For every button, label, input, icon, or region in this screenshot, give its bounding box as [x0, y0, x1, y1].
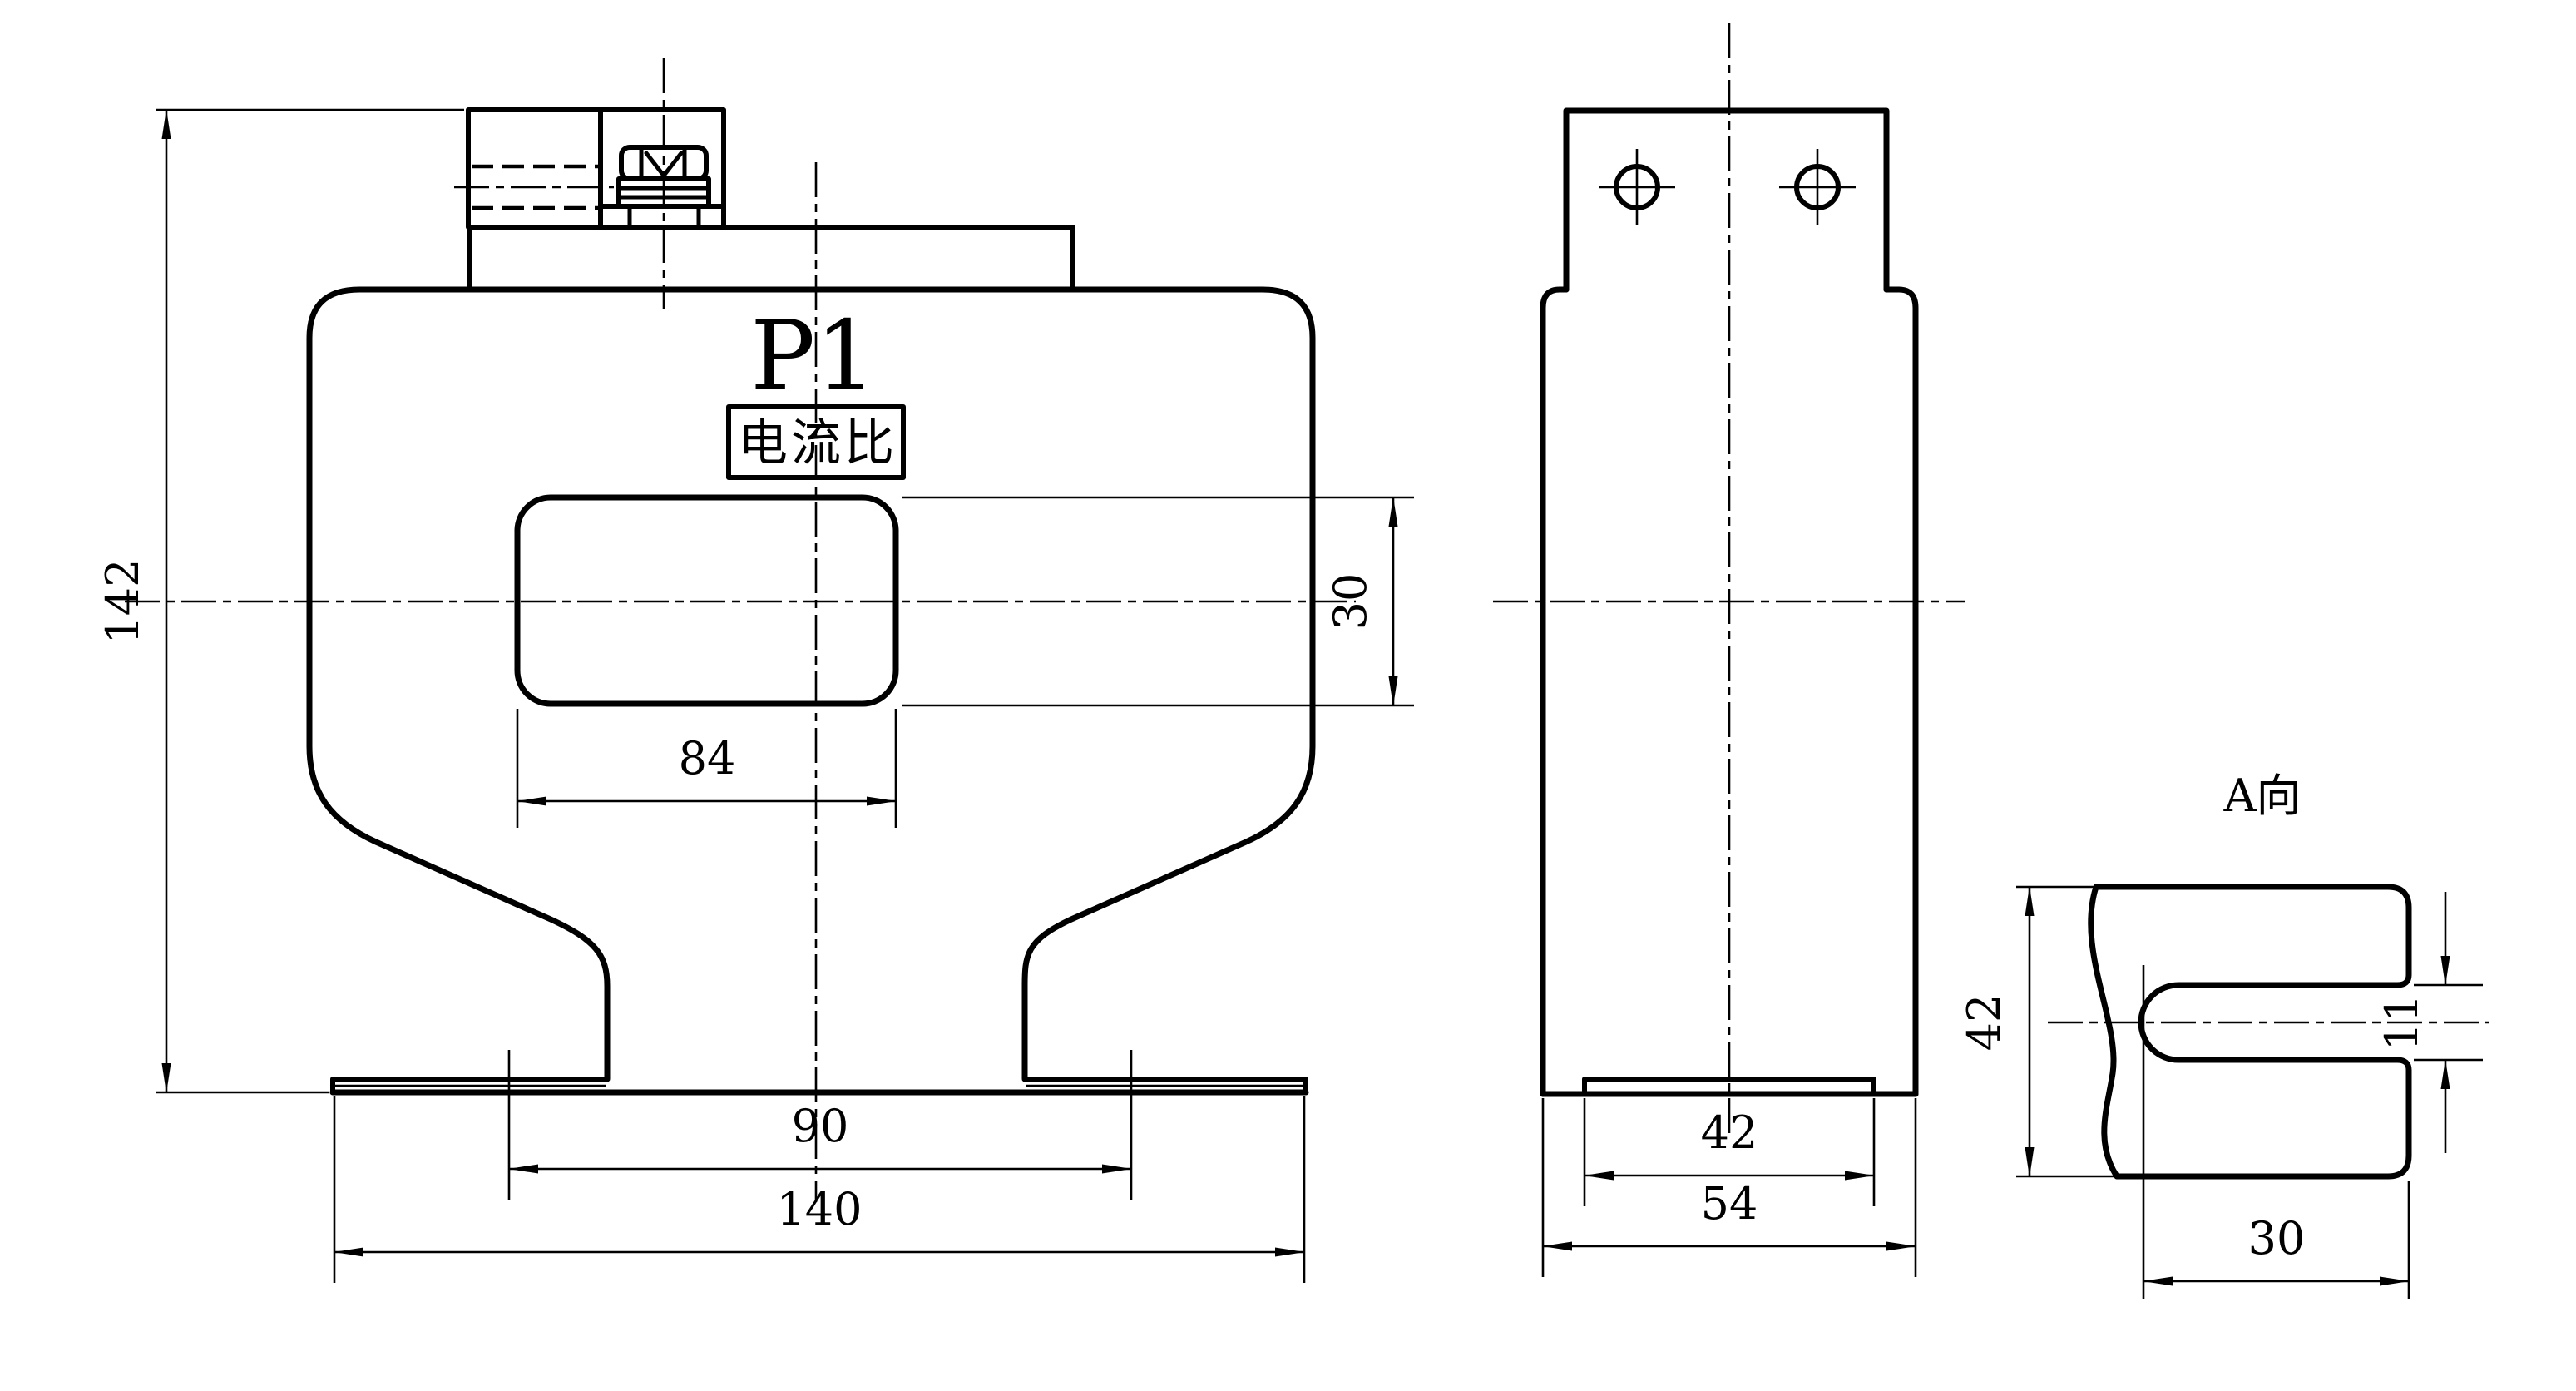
side-tab-outline [1566, 111, 1886, 290]
transformer-outline-drawing: 142 84 30 90 140 [0, 0, 2576, 1391]
dim-140-text: 140 [776, 1183, 862, 1235]
terminal-marking-p1: P1 [750, 300, 877, 413]
dim-90-text: 90 [792, 1100, 849, 1152]
side-view: 42 54 [1493, 23, 1965, 1277]
dim-11-text: 11 [2376, 994, 2428, 1052]
dim-30-aux-text: 30 [2248, 1212, 2306, 1265]
top-plate [470, 227, 1073, 290]
terminal-hole-right [1779, 149, 1856, 225]
dim-54-text: 54 [1701, 1177, 1758, 1230]
dim-30-aux: 30 [2143, 965, 2409, 1299]
drawing-canvas: 142 84 30 90 140 [0, 0, 2576, 1391]
dim-84-text: 84 [679, 732, 736, 785]
dim-84: 84 [517, 709, 896, 828]
dim-42-aux-text: 42 [1958, 994, 2010, 1052]
ratio-plate-text: 电流比 [738, 414, 897, 473]
dim-142-text: 142 [96, 558, 149, 644]
front-view: 142 84 30 90 140 [96, 58, 1414, 1283]
side-body-left [1543, 290, 1566, 1094]
aux-view-a: A向 42 11 30 [1958, 770, 2489, 1299]
side-body-right [1886, 290, 1916, 1094]
aux-plate-outline [2091, 887, 2409, 1176]
dim-30-text: 30 [1324, 573, 1377, 631]
terminal-hole-left [1599, 149, 1675, 225]
base-plate [333, 1079, 1306, 1092]
dim-42-aux: 42 [1958, 887, 2119, 1176]
dim-90: 90 [509, 1050, 1131, 1200]
aux-view-title: A向 [2223, 770, 2302, 822]
dim-42-side-text: 42 [1701, 1106, 1758, 1159]
